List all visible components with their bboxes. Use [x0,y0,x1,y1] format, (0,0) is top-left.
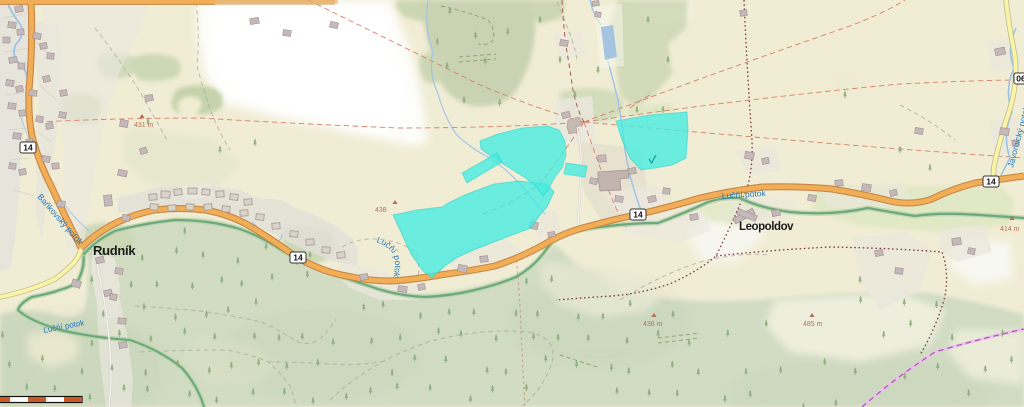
svg-text:06: 06 [1016,74,1024,84]
svg-text:431 m: 431 m [134,122,154,129]
svg-text:14: 14 [986,177,996,187]
svg-text:436 m: 436 m [643,321,663,328]
svg-text:14: 14 [23,143,33,153]
svg-text:Rudník: Rudník [93,243,136,258]
svg-text:485 m: 485 m [803,321,823,328]
svg-text:Leopoldov: Leopoldov [739,221,794,233]
svg-text:14: 14 [633,210,643,220]
svg-text:438: 438 [375,207,387,214]
svg-text:414 m: 414 m [1000,226,1020,233]
svg-text:14: 14 [293,253,303,263]
